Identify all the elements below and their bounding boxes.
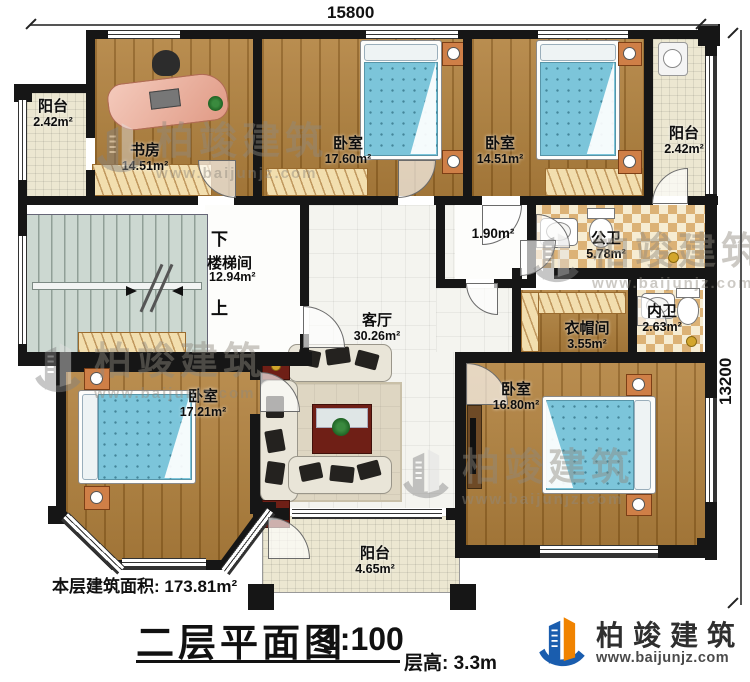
- wall: [18, 352, 312, 366]
- room-label-bedroom-top-right: 卧室 14.51m²: [450, 135, 550, 166]
- lamp: [623, 155, 636, 168]
- door-arc: [520, 240, 556, 276]
- room-label-public-bathroom: 公卫 5.78m²: [556, 230, 656, 261]
- dimension-height: 13200: [716, 358, 736, 405]
- sofa-cushion: [329, 465, 355, 483]
- wall: [250, 414, 260, 514]
- stair-up-label: 上: [211, 294, 228, 319]
- room-label-balcony-top-right: 阳台 2.42m²: [648, 125, 720, 156]
- window: [540, 545, 658, 558]
- room-area: 5.78m²: [556, 247, 656, 261]
- sliding-door: [292, 509, 442, 519]
- wall: [434, 196, 482, 205]
- brand-logo-icon: [534, 608, 590, 672]
- stair-down-label: 下: [211, 225, 228, 250]
- wall: [436, 279, 466, 288]
- column: [697, 538, 717, 558]
- wall: [234, 196, 398, 205]
- room-name: 内卫: [612, 303, 712, 320]
- room-name: 阳台: [18, 98, 88, 115]
- floor-plan-canvas: 阳台 2.42m² 书房 14.51m² 卧室 17.60m² 卧室 14.51…: [0, 0, 750, 682]
- dimension-line-top: [30, 24, 718, 26]
- cloakroom-wardrobe: [524, 292, 626, 314]
- floor-drain: [686, 336, 697, 347]
- room-name: 书房: [95, 142, 195, 159]
- room-area: 2.42m²: [648, 142, 720, 156]
- room-label-bedroom-top-middle: 卧室 17.60m²: [298, 135, 398, 166]
- wall: [644, 30, 653, 205]
- room-label-study: 书房 14.51m²: [95, 142, 195, 173]
- room-name: 卧室: [450, 135, 550, 152]
- dimension-tick: [727, 27, 738, 38]
- room-area-stairwell: 12.94m²: [209, 270, 256, 284]
- plan-scale: 1:100: [322, 621, 404, 658]
- floor-height-text: 层高: 3.3m: [404, 648, 497, 675]
- room-name: 阳台: [325, 545, 425, 562]
- room-area: 30.26m²: [327, 329, 427, 343]
- bed-pillow: [82, 394, 98, 480]
- table-plant: [332, 418, 350, 436]
- window: [122, 558, 206, 570]
- bed-pillow: [634, 400, 651, 490]
- floor-area-text: 本层建筑面积: 173.81m²: [52, 572, 237, 597]
- room-area: 17.60m²: [298, 152, 398, 166]
- room-area: 14.51m²: [450, 152, 550, 166]
- lamp: [90, 491, 103, 504]
- room-area: 1.90m²: [453, 226, 533, 241]
- room-area: 14.51m²: [95, 159, 195, 173]
- wardrobe: [266, 168, 368, 196]
- column: [248, 584, 274, 610]
- room-label-bedroom-bottom-right: 卧室 16.80m²: [466, 381, 566, 412]
- bed-pillow: [540, 44, 616, 61]
- wall: [554, 268, 716, 279]
- sofa-cushion: [264, 429, 286, 454]
- room-label-balcony-bottom: 阳台 4.65m²: [325, 545, 425, 576]
- dimension-width: 15800: [327, 3, 374, 23]
- laptop: [149, 88, 181, 110]
- washing-machine-door: [663, 49, 682, 68]
- room-label-bedroom-bottom-left: 卧室 17.21m²: [153, 388, 253, 419]
- room-label-balcony-top-left: 阳台 2.42m²: [18, 98, 88, 129]
- lamp: [90, 372, 103, 385]
- room-area: 2.42m²: [18, 115, 88, 129]
- room-area: 16.80m²: [466, 398, 566, 412]
- column: [450, 584, 476, 610]
- dimension-line-right: [740, 30, 742, 605]
- sofa-cushion: [265, 461, 286, 485]
- window: [18, 236, 27, 344]
- wall: [688, 196, 718, 205]
- lamp: [632, 498, 645, 511]
- window: [108, 30, 180, 39]
- stair-arrow: [126, 286, 137, 296]
- brand-name: 柏竣建筑: [596, 614, 744, 654]
- room-name: 卧室: [466, 381, 566, 398]
- wall: [18, 196, 198, 205]
- desk-chair: [152, 50, 180, 76]
- wall: [520, 196, 652, 205]
- window: [366, 30, 458, 39]
- stair-upper-flight-hatch: [78, 332, 186, 354]
- title-underline: [136, 660, 400, 663]
- wall: [455, 352, 717, 363]
- dimension-tick: [727, 597, 738, 608]
- lamp: [632, 378, 645, 391]
- wall: [463, 30, 472, 205]
- window: [705, 398, 717, 502]
- desk-plant: [208, 96, 223, 111]
- wall: [512, 279, 521, 363]
- room-name: 公卫: [556, 230, 656, 247]
- room-label-cloakroom: 衣帽间 3.55m²: [537, 320, 637, 351]
- column: [698, 24, 720, 46]
- room-name: 衣帽间: [537, 320, 637, 337]
- room-area: 17.21m²: [153, 405, 253, 419]
- room-area: 3.55m²: [537, 337, 637, 351]
- room-label-living-room: 客厅 30.26m²: [327, 312, 427, 343]
- room-name: 卧室: [298, 135, 398, 152]
- bed-pillow: [364, 44, 438, 61]
- room-name: 卧室: [153, 388, 253, 405]
- stair-arrow: [172, 286, 183, 296]
- floor-drain: [668, 252, 679, 263]
- wall: [300, 196, 309, 306]
- tv: [470, 418, 476, 474]
- window: [538, 30, 628, 39]
- wall: [436, 205, 445, 285]
- room-area: 4.65m²: [325, 562, 425, 576]
- wall: [446, 508, 466, 520]
- plan-title: 二层平面图: [136, 612, 346, 667]
- wall: [253, 30, 262, 205]
- lamp: [447, 47, 460, 60]
- wall: [250, 372, 260, 380]
- sofa-cushion: [325, 346, 351, 365]
- room-label-hallway: 1.90m²: [453, 226, 533, 241]
- room-name: 客厅: [327, 312, 427, 329]
- room-name: 阳台: [648, 125, 720, 142]
- lamp: [623, 47, 636, 60]
- brand-url: www.baijunjz.com: [596, 650, 729, 666]
